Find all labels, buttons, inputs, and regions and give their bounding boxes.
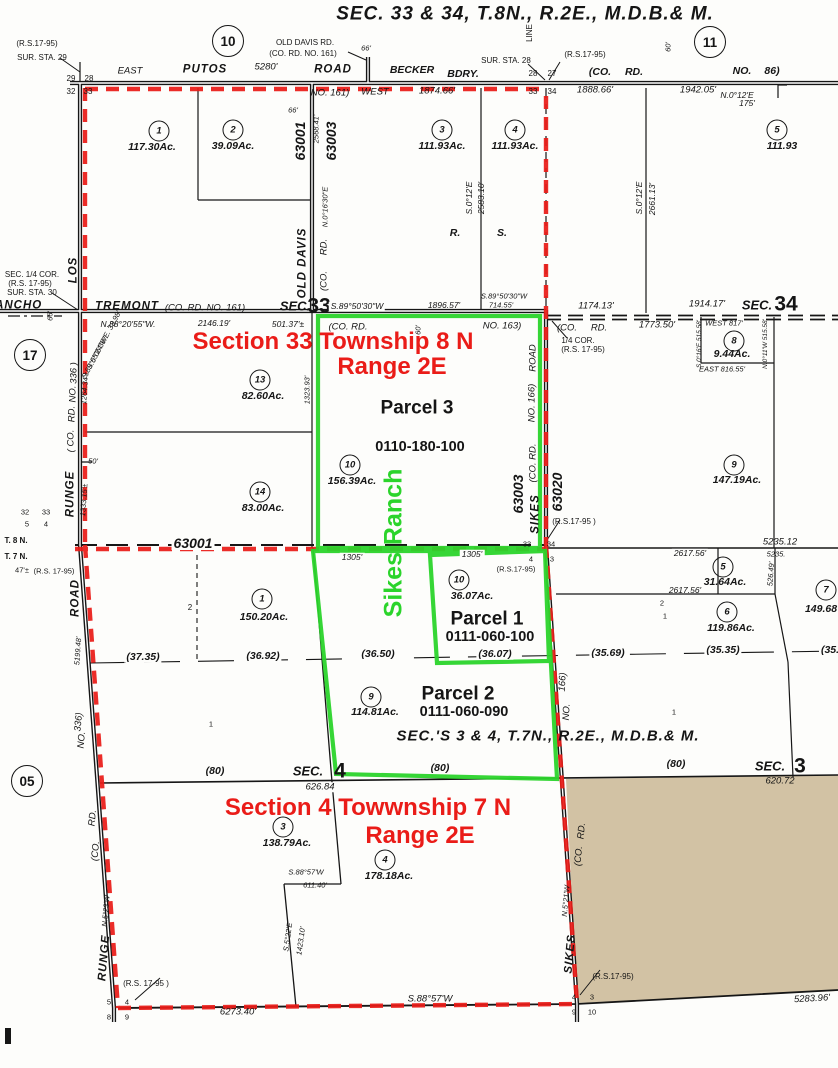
map-label: 66' <box>361 44 371 52</box>
sec-33-number: 33 <box>307 296 330 317</box>
map-label: 2 <box>188 604 192 612</box>
map-label: SIKES <box>564 934 579 974</box>
map-label: 147.19Ac. <box>713 475 761 486</box>
parcel-1-label: Parcel 1 <box>451 610 524 629</box>
map-label: 63003 <box>511 475 525 514</box>
map-label: NO. <box>68 386 78 403</box>
parcel-number-circle: 3 <box>432 120 453 141</box>
map-label: NO. 166) <box>527 384 537 423</box>
parcel-number-circle: 1 <box>149 121 170 142</box>
parcel-number-circle: 6 <box>717 602 738 623</box>
map-label: S. <box>497 228 507 239</box>
map-label: 111.93Ac. <box>419 141 466 152</box>
map-label: 138.79Ac. <box>263 838 311 849</box>
old-davis-rd-label: OLD DAVIS RD. <box>276 39 334 47</box>
map-label: 60' <box>414 325 422 335</box>
map-label: (35.69) <box>589 648 626 659</box>
map-label: N.0°16'30"E <box>321 187 329 227</box>
map-label: 50' <box>88 457 98 465</box>
map-label: (80) <box>665 759 688 770</box>
map-label: 34 <box>548 88 557 96</box>
map-label: SEC. <box>742 299 772 312</box>
map-label: 1264.34'± <box>80 371 90 404</box>
map-label: RD. <box>67 406 77 422</box>
map-label: SEC. 1/4 COR. <box>5 271 59 279</box>
map-label: 63001 <box>172 536 215 550</box>
map-label: 526.49' <box>766 562 775 587</box>
map-label: 28 <box>529 70 538 78</box>
map-label: 1888.66' <box>577 85 613 95</box>
map-label: (R.S. 17-95 ) <box>123 980 169 988</box>
sec-3-number: 3 <box>794 756 806 777</box>
map-label: 111.93 <box>767 141 798 152</box>
map-label: (CO. RD. NO. 161) <box>165 303 245 313</box>
map-label: 10 <box>588 1008 596 1016</box>
map-label: SEC. <box>280 300 310 313</box>
map-label: 611.40' <box>303 881 327 889</box>
map-label: 2617.56' <box>669 586 701 595</box>
map-label: ROAD <box>528 344 538 371</box>
sec-4-number: 4 <box>334 761 346 782</box>
annotation-section-4-range: Range 2E <box>365 824 474 848</box>
map-label: N.5°21'W <box>561 885 571 917</box>
parcel-number-circle: 3 <box>273 817 294 838</box>
parcel-number-circle: 5 <box>767 120 788 141</box>
map-label: 86) <box>764 66 779 77</box>
map-label: 36.07Ac. <box>451 591 494 602</box>
map-label: T. 7 N. <box>4 553 27 561</box>
los-road-label: LOS <box>68 257 80 284</box>
map-label: 1 <box>209 720 213 728</box>
map-label: 3 <box>550 555 554 563</box>
map-label: 31.64Ac. <box>704 577 747 588</box>
map-label: R. <box>450 228 461 239</box>
section-id-17: 17 <box>14 339 46 371</box>
runge-road-label: RUNGE <box>65 471 77 518</box>
map-label: 119.86Ac. <box>707 623 755 634</box>
map-label: EAST 816.55' <box>699 365 745 373</box>
map-label: 175' <box>739 99 755 108</box>
annotation-section-4: Section 4 Towwnship 7 N <box>225 796 511 820</box>
map-label: (R.S.17-95 ) <box>552 518 596 526</box>
putos-road-label: PUTOS <box>183 64 227 76</box>
map-label: 2568.41' <box>312 115 320 144</box>
map-label: 5280' <box>255 62 278 72</box>
map-label: 1896.57' <box>428 301 460 310</box>
parcel-1-apn: 0111-060-100 <box>446 630 535 645</box>
map-label: S.0°12'E <box>465 182 474 215</box>
map-label: 66' <box>288 106 298 114</box>
tremont-road-label: TREMONT <box>95 301 159 313</box>
map-label: 166) <box>558 672 568 691</box>
section-id-10: 10 <box>212 25 244 57</box>
map-label: NO. <box>77 731 88 749</box>
map-label: 28 <box>85 75 94 83</box>
map-label: (R.S.17-95) <box>497 565 536 573</box>
map-label: ROAD <box>314 64 352 76</box>
map-label: OLD DAVIS <box>297 228 309 299</box>
map-label: 2146.19' <box>198 319 230 328</box>
map-label: NO. <box>562 703 572 720</box>
map-label: RD. <box>577 822 588 839</box>
section-id-11: 11 <box>694 26 726 58</box>
map-label: 6273.40' <box>220 1007 256 1017</box>
map-label: (36.92) <box>244 651 281 662</box>
map-label: 150.20Ac. <box>240 612 288 623</box>
map-label: WEST <box>361 87 388 97</box>
map-label: ( CO. <box>66 430 76 453</box>
parcel-2-apn: 0111-060-090 <box>420 705 509 720</box>
map-label: (CO. <box>573 846 584 867</box>
parcel-number-circle: 10 <box>449 570 470 591</box>
map-label: 63001 <box>293 122 307 161</box>
map-label: S.88°57'W <box>408 994 453 1004</box>
map-title: SEC. 33 & 34, T.8N., R.2E., M.D.B.& M. <box>336 5 714 24</box>
map-label: N.0°11'W 515.58' <box>763 319 770 369</box>
map-label: 4 <box>44 520 48 528</box>
map-label: 34 <box>547 540 555 548</box>
map-label: SUR. STA. 28 <box>481 57 531 65</box>
map-label: 1305' <box>460 550 485 559</box>
map-label: (36.50) <box>359 649 396 660</box>
map-label: 1942.05' <box>680 85 716 95</box>
map-label: 1423.10' <box>295 926 306 955</box>
map-label: SEC. <box>291 765 325 778</box>
map-label: 156.39Ac. <box>328 476 376 487</box>
map-label: 5235. <box>767 550 786 558</box>
map-label: (R.S.17-95) <box>16 40 57 48</box>
map-label: 8 <box>107 1013 111 1021</box>
parcel-number-circle: 9 <box>361 687 382 708</box>
map-label: RD. <box>319 239 329 255</box>
annotation-section-33-range: Range 2E <box>337 355 446 379</box>
map-label: 60' <box>664 42 672 52</box>
map-label: (R.S.17-95) <box>564 51 605 59</box>
map-label: 32 <box>67 88 76 96</box>
map-label: 4 <box>125 998 129 1006</box>
map-label: 336 ) <box>69 362 79 384</box>
map-label: 111.93Ac. <box>492 141 539 152</box>
map-label: 714.55' <box>489 301 513 309</box>
map-label: 39.09Ac. <box>212 141 255 152</box>
subtitle: SEC.'S 3 & 4, T.7N., R.2E., M.D.B.& M. <box>396 729 699 744</box>
map-label: 620.72 <box>765 776 794 786</box>
map-label: 5 <box>25 520 29 528</box>
map-label: 9 <box>125 1013 129 1021</box>
map-label: LINE <box>526 24 534 42</box>
map-label: 9 <box>572 1008 576 1016</box>
parcel-number-circle: 9 <box>724 455 745 476</box>
map-label: (35. <box>819 645 838 656</box>
map-label: NO. <box>733 66 752 77</box>
map-label: WEST 817' <box>705 319 743 327</box>
map-label: (CO. RD. NO. 161) <box>269 50 337 58</box>
map-label: 29 <box>67 75 76 83</box>
map-label: (R.S. 17-95) <box>8 280 52 288</box>
section-id-05: 05 <box>11 765 43 797</box>
map-label: RD. <box>88 809 99 826</box>
map-label: 1305' <box>340 553 365 562</box>
map-label: 4 <box>529 555 533 563</box>
map-label: 1 <box>663 612 667 620</box>
map-label: ROAD <box>70 579 82 617</box>
map-label: RD. <box>591 323 607 333</box>
sikes-road-label: SIKES <box>530 494 542 534</box>
map-label: 47'± <box>15 566 29 574</box>
map-label: 2661.13' <box>648 183 657 215</box>
parcel-number-circle: 2 <box>223 120 244 141</box>
map-label: (36.07) <box>476 649 513 660</box>
annotation-section-33: Section 33 Township 8 N <box>193 330 474 354</box>
map-label: S.88°57'W <box>288 868 323 876</box>
map-label: (CO. <box>319 271 329 291</box>
map-label: (37.35) <box>124 652 161 663</box>
map-label: N.5°23'W <box>101 895 111 927</box>
map-label: BDRY. <box>447 69 479 80</box>
map-label: RUNGE <box>97 934 113 981</box>
map-label: 2583.10' <box>477 182 486 214</box>
map-label: (80) <box>429 763 452 774</box>
map-label: 117.30Ac. <box>128 142 176 153</box>
map-label: SEC. <box>753 760 787 773</box>
rancho-road-label: RANCHO <box>0 300 42 312</box>
parcel-3-apn: 0110-180-100 <box>375 440 465 455</box>
parcel-2-label: Parcel 2 <box>422 685 495 704</box>
map-label: 1174.13' <box>578 301 613 311</box>
map-label: BECKER <box>390 65 434 76</box>
map-labels-layer: SEC. 33 & 34, T.8N., R.2E., M.D.B.& M.(R… <box>0 0 838 1068</box>
map-label: 3 <box>590 993 594 1001</box>
map-label: 5 <box>107 998 111 1006</box>
map-label: (CO. RD. <box>528 443 538 482</box>
map-label: 5199.48' <box>73 636 82 665</box>
map-label: EAST <box>118 66 143 76</box>
parcel-number-circle: 14 <box>250 482 271 503</box>
map-label: T. 8 N. <box>4 537 27 545</box>
map-label: 1323.93' <box>303 376 311 405</box>
parcel-number-circle: 4 <box>375 850 396 871</box>
sec-34-number: 34 <box>774 294 797 315</box>
parcel-3-label: Parcel 3 <box>381 399 454 418</box>
map-label: 33 <box>523 540 531 548</box>
map-label: 1333.15'± <box>79 483 89 516</box>
map-label: 1914.17' <box>689 299 725 309</box>
map-label: S.89°50'30"W <box>329 302 385 311</box>
map-label: 33 <box>529 88 538 96</box>
map-label: 178.18Ac. <box>365 871 413 882</box>
map-label: NO. 161) <box>311 88 350 98</box>
map-label: (R.S. 17-95) <box>34 567 75 575</box>
map-label: 63020 <box>550 473 564 512</box>
map-label: S.0°12'E <box>635 182 644 215</box>
parcel-number-circle: 5 <box>713 557 734 578</box>
sikes-ranch-label: Sikes Ranch <box>382 469 407 618</box>
parcel-number-circle: 1 <box>252 589 273 610</box>
map-label: (CO. <box>589 67 611 78</box>
map-label: 149.68 <box>805 604 837 615</box>
map-label: 1 <box>672 708 676 716</box>
map-label: 336) <box>73 712 84 732</box>
map-label: 2617.56' <box>672 549 708 558</box>
map-label: 83.00Ac. <box>242 503 285 514</box>
map-label: 82.60Ac. <box>242 391 285 402</box>
map-label: (R.S.17-95) <box>592 973 633 981</box>
parcel-number-circle: 4 <box>505 120 526 141</box>
map-label: 501.37'± <box>272 320 304 329</box>
map-label: (35.35) <box>704 645 741 656</box>
map-label: 27 <box>548 70 557 78</box>
map-label: (CO. <box>557 323 577 333</box>
map-label: RD. <box>625 67 643 78</box>
map-label: 32 <box>21 508 29 516</box>
map-label: 2 <box>660 599 664 607</box>
parcel-number-circle: 10 <box>340 455 361 476</box>
map-label: SUR. STA. 30 <box>7 289 57 297</box>
map-label: S.89°50'30"W <box>481 292 527 300</box>
map-label: 1773.50' <box>639 320 675 330</box>
parcel-number-circle: 13 <box>250 370 271 391</box>
parcel-number-circle: 7 <box>816 580 837 601</box>
map-label: S.0°16'E 515.58' <box>697 320 704 368</box>
map-label: (80) <box>204 766 227 777</box>
map-label: 1874.66' <box>419 86 455 96</box>
map-label: 626.84 <box>303 782 336 792</box>
map-label: (R.S. 17-95) <box>561 346 605 354</box>
parcel-number-circle: 8 <box>724 331 745 352</box>
map-label: S.5°22'E <box>282 922 293 952</box>
map-label: 66' <box>46 311 54 321</box>
map-label: SUR. STA. 29 <box>17 54 67 62</box>
map-label: (CO. RD. <box>328 322 367 332</box>
map-label: NO. 163) <box>483 321 522 331</box>
map-label: 114.81Ac. <box>351 707 399 718</box>
map-label: 4 <box>572 993 576 1001</box>
map-label: 1/4 COR. <box>561 337 594 345</box>
map-label: 33 <box>42 508 50 516</box>
map-label: 63003 <box>324 122 338 161</box>
plat-map: SEC. 33 & 34, T.8N., R.2E., M.D.B.& M.(R… <box>0 0 838 1068</box>
map-label: 33 <box>84 88 93 96</box>
map-label: 5283.96' <box>794 993 831 1004</box>
map-label: 5235.12 <box>763 537 797 547</box>
map-label: (CO. <box>90 841 101 862</box>
